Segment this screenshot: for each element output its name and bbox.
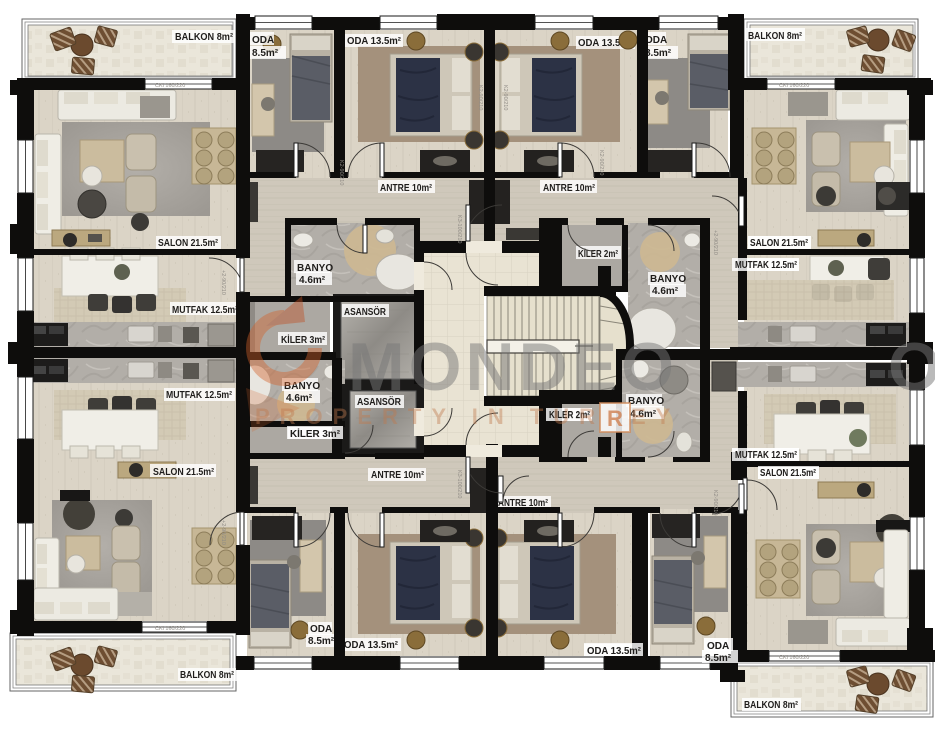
svg-text:SALON 21.5m²: SALON 21.5m² (750, 238, 809, 249)
svg-text:CKl 160/220: CKl 160/220 (155, 83, 185, 89)
svg-text:ANTRE 10m²: ANTRE 10m² (380, 183, 433, 194)
svg-text:ANTRE 10m²: ANTRE 10m² (371, 470, 425, 481)
svg-text:K3-100/210: K3-100/210 (456, 215, 462, 243)
svg-text:MUTFAK 12.5m²: MUTFAK 12.5m² (735, 450, 798, 461)
svg-text:K2-90/210: K2-90/210 (477, 85, 483, 110)
svg-text:ODA 13.5m²: ODA 13.5m² (344, 640, 399, 651)
svg-text:O: O (888, 329, 935, 405)
svg-text:8.5m²: 8.5m² (645, 48, 672, 59)
svg-text:K2-90/210: K2-90/210 (338, 160, 344, 185)
svg-text:+2-90/210: +2-90/210 (712, 230, 718, 255)
svg-text:ODA: ODA (252, 35, 274, 46)
svg-text:BANYO: BANYO (650, 274, 686, 285)
svg-text:+2-90/210: +2-90/210 (220, 270, 226, 295)
svg-text:KİLER 3m²: KİLER 3m² (281, 333, 326, 346)
svg-text:4.6m²: 4.6m² (652, 286, 679, 297)
svg-text:4.6m²: 4.6m² (286, 393, 313, 404)
svg-text:R: R (607, 406, 623, 431)
svg-text:ODA: ODA (310, 624, 332, 635)
svg-text:MUTFAK 12.5m²: MUTFAK 12.5m² (172, 305, 239, 316)
svg-text:8.5m²: 8.5m² (252, 48, 279, 59)
svg-text:8.5m²: 8.5m² (308, 636, 335, 647)
svg-text:MUTFAK 12.5m²: MUTFAK 12.5m² (166, 390, 233, 401)
svg-text:MUTFAK 12.5m²: MUTFAK 12.5m² (735, 260, 798, 271)
svg-text:CKl 160/220: CKl 160/220 (779, 83, 809, 89)
svg-text:SALON 21.5m²: SALON 21.5m² (760, 468, 817, 479)
svg-text:MONDEO: MONDEO (348, 329, 678, 405)
svg-text:CKl 160/220: CKl 160/220 (155, 626, 185, 632)
svg-text:K3-100/210: K3-100/210 (456, 470, 462, 498)
svg-text:K2-90/210: K2-90/210 (598, 150, 604, 175)
svg-text:SALON 21.5m²: SALON 21.5m² (158, 238, 219, 249)
svg-text:ODA 13.5m²: ODA 13.5m² (587, 646, 642, 657)
svg-text:8.5m²: 8.5m² (705, 653, 732, 664)
svg-text:+2-90/210: +2-90/210 (220, 520, 226, 545)
svg-text:BALKON 8m²: BALKON 8m² (175, 32, 234, 43)
svg-text:ODA: ODA (645, 35, 667, 46)
svg-text:ANTRE 10m²: ANTRE 10m² (543, 183, 596, 194)
svg-text:SALON 21.5m²: SALON 21.5m² (153, 467, 215, 478)
svg-text:K2-90/210: K2-90/210 (712, 490, 718, 515)
svg-text:BALKON 8m²: BALKON 8m² (180, 670, 235, 681)
svg-text:BALKON 8m²: BALKON 8m² (748, 31, 803, 42)
svg-text:ODA 13.5m²: ODA 13.5m² (347, 36, 402, 47)
svg-text:K2-90/210: K2-90/210 (502, 85, 508, 110)
svg-text:BALKON 8m²: BALKON 8m² (744, 700, 799, 711)
svg-text:4.6m²: 4.6m² (299, 275, 326, 286)
svg-text:CKl 160/220: CKl 160/220 (779, 655, 809, 661)
svg-text:ASANSÖR: ASANSÖR (344, 305, 387, 318)
